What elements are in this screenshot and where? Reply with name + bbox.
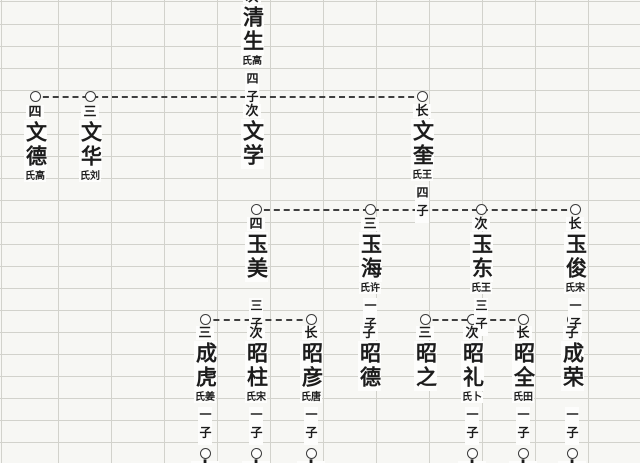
person-name: 昭礼	[461, 341, 484, 391]
person-zhaozhu: 次 昭柱 氏宋 一子 十	[243, 326, 269, 463]
node-circle-descendant	[467, 448, 478, 459]
spouse-label: 氏刘	[79, 171, 101, 182]
person-zhaode: 子 昭德	[356, 326, 382, 391]
person-name: 昭彦	[300, 341, 323, 391]
birth-order-label: 长	[514, 326, 531, 340]
person-name: 玉俊	[564, 232, 587, 282]
person-wende: 四 文德 氏高	[22, 105, 48, 182]
spouse-label: 氏唐	[300, 392, 322, 403]
birth-order-label: 长	[413, 104, 430, 118]
node-circle-descendant	[251, 448, 262, 459]
spouse-label: 氏卜	[461, 392, 483, 403]
birth-order-label: 四	[247, 217, 264, 231]
person-yujun: 长 玉俊 氏宋 一子	[562, 217, 588, 336]
birth-order-label: 三	[196, 326, 213, 340]
spouse-label: 氏王	[470, 283, 492, 294]
person-chenghu: 三 成虎 氏姜 一子 十	[192, 326, 218, 463]
birth-order-label: 长	[302, 326, 319, 340]
person-name: 昭之	[414, 341, 437, 391]
node-circle-chenghu	[200, 314, 211, 325]
person-name: 玉美	[245, 232, 268, 282]
birth-order-label: 次	[247, 326, 264, 340]
person-name: 昭全	[512, 341, 535, 391]
spouse-label: 氏田	[512, 392, 534, 403]
person-wenxue: 次 文学	[239, 104, 265, 169]
node-circle-zhaozhi	[420, 314, 431, 325]
birth-order-label-cut: 次	[243, 0, 260, 4]
birth-order-label: 次	[243, 104, 260, 118]
node-circle-descendant	[518, 448, 529, 459]
node-circle-yudong	[476, 204, 487, 215]
sons-count-label: 一子	[465, 407, 479, 445]
sons-count-label: 一子	[249, 407, 263, 445]
birth-order-label: 次	[472, 217, 489, 231]
node-circle-yuhai	[365, 204, 376, 215]
node-circle-wenhua	[85, 91, 96, 102]
sons-count-label: 一子	[516, 407, 530, 445]
person-zhaozhi: 三 昭之	[412, 326, 438, 391]
sons-count-label: 一子	[565, 407, 579, 445]
node-circle-zhaoyan	[306, 314, 317, 325]
spouse-label: 氏姜	[194, 392, 216, 403]
birth-order-label: 长	[566, 217, 583, 231]
node-circle-wenkui	[417, 91, 428, 102]
spouse-label: 氏高	[241, 56, 263, 67]
node-circle-descendant	[567, 448, 578, 459]
birth-order-label: 三	[416, 326, 433, 340]
sons-count-label: 四子	[415, 185, 429, 223]
spouse-label: 氏许	[359, 283, 381, 294]
node-circle-wende	[30, 91, 41, 102]
sons-count-label: 一子	[304, 407, 318, 445]
person-name: 玉东	[470, 232, 493, 282]
birth-order-label: 次	[463, 326, 480, 340]
spouse-label: 氏宋	[245, 392, 267, 403]
person-name: 文华	[79, 120, 102, 170]
person-wenkui: 长 文奎 氏王 四子	[409, 104, 435, 223]
node-circle-zhaoquan	[518, 314, 529, 325]
person-name: 成荣	[561, 341, 584, 391]
person-yudong: 次 玉东 氏王 三子	[468, 217, 494, 336]
person-yumei: 四 玉美 三子	[243, 217, 269, 336]
family-tree-diagram: 次 清生 氏高 四子 四 文德 氏高 三 文华 氏刘 次 文学 长 文奎 氏王 …	[0, 0, 640, 463]
spouse-label: 氏高	[24, 171, 46, 182]
spouse-label: 氏宋	[564, 283, 586, 294]
person-zhaoquan: 长 昭全 氏田 一子 十	[510, 326, 536, 463]
birth-order-label: 三	[361, 217, 378, 231]
person-name: 文学	[241, 119, 264, 169]
person-zhaoyan: 长 昭彦 氏唐 一子 十	[298, 326, 324, 463]
person-name: 昭德	[358, 341, 381, 391]
birth-order-label: 子	[360, 326, 377, 340]
person-name: 玉海	[359, 232, 382, 282]
node-circle-descendant	[200, 448, 211, 459]
person-name: 文奎	[411, 119, 434, 169]
birth-order-label: 子	[563, 326, 580, 340]
node-circle-descendant	[306, 448, 317, 459]
person-chengrong: 子 成荣 一子 十	[559, 326, 585, 463]
node-circle-yumei	[251, 204, 262, 215]
person-qingsheng: 次 清生 氏高 四子	[239, 0, 265, 109]
person-name: 清生	[241, 5, 264, 55]
person-name: 文德	[24, 120, 47, 170]
person-name: 昭柱	[245, 341, 268, 391]
spouse-label: 氏王	[411, 170, 433, 181]
person-name: 成虎	[194, 341, 217, 391]
node-circle-yujun	[570, 204, 581, 215]
sons-count-label: 一子	[198, 407, 212, 445]
person-wenhua: 三 文华 氏刘	[77, 105, 103, 182]
person-zhaoli: 次 昭礼 氏卜 一子 十	[459, 326, 485, 463]
person-yuhai: 三 玉海 氏许 一子	[357, 217, 383, 336]
birth-order-label: 四	[26, 105, 43, 119]
birth-order-label: 三	[81, 105, 98, 119]
